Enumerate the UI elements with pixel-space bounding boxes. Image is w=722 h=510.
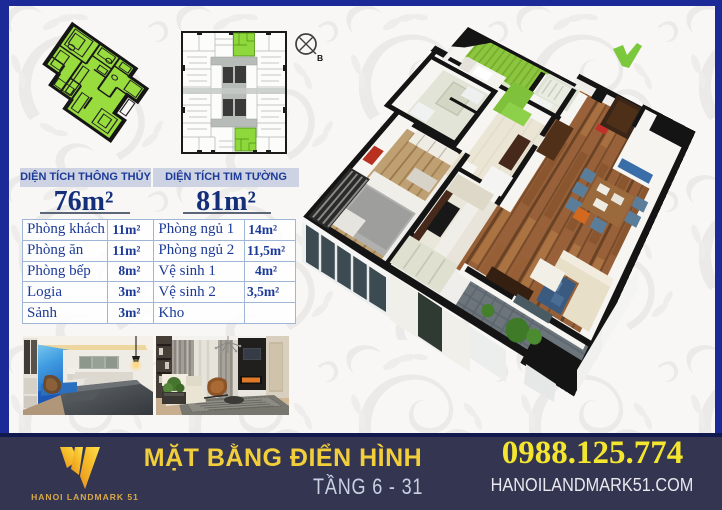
svg-text:B: B — [317, 53, 323, 63]
